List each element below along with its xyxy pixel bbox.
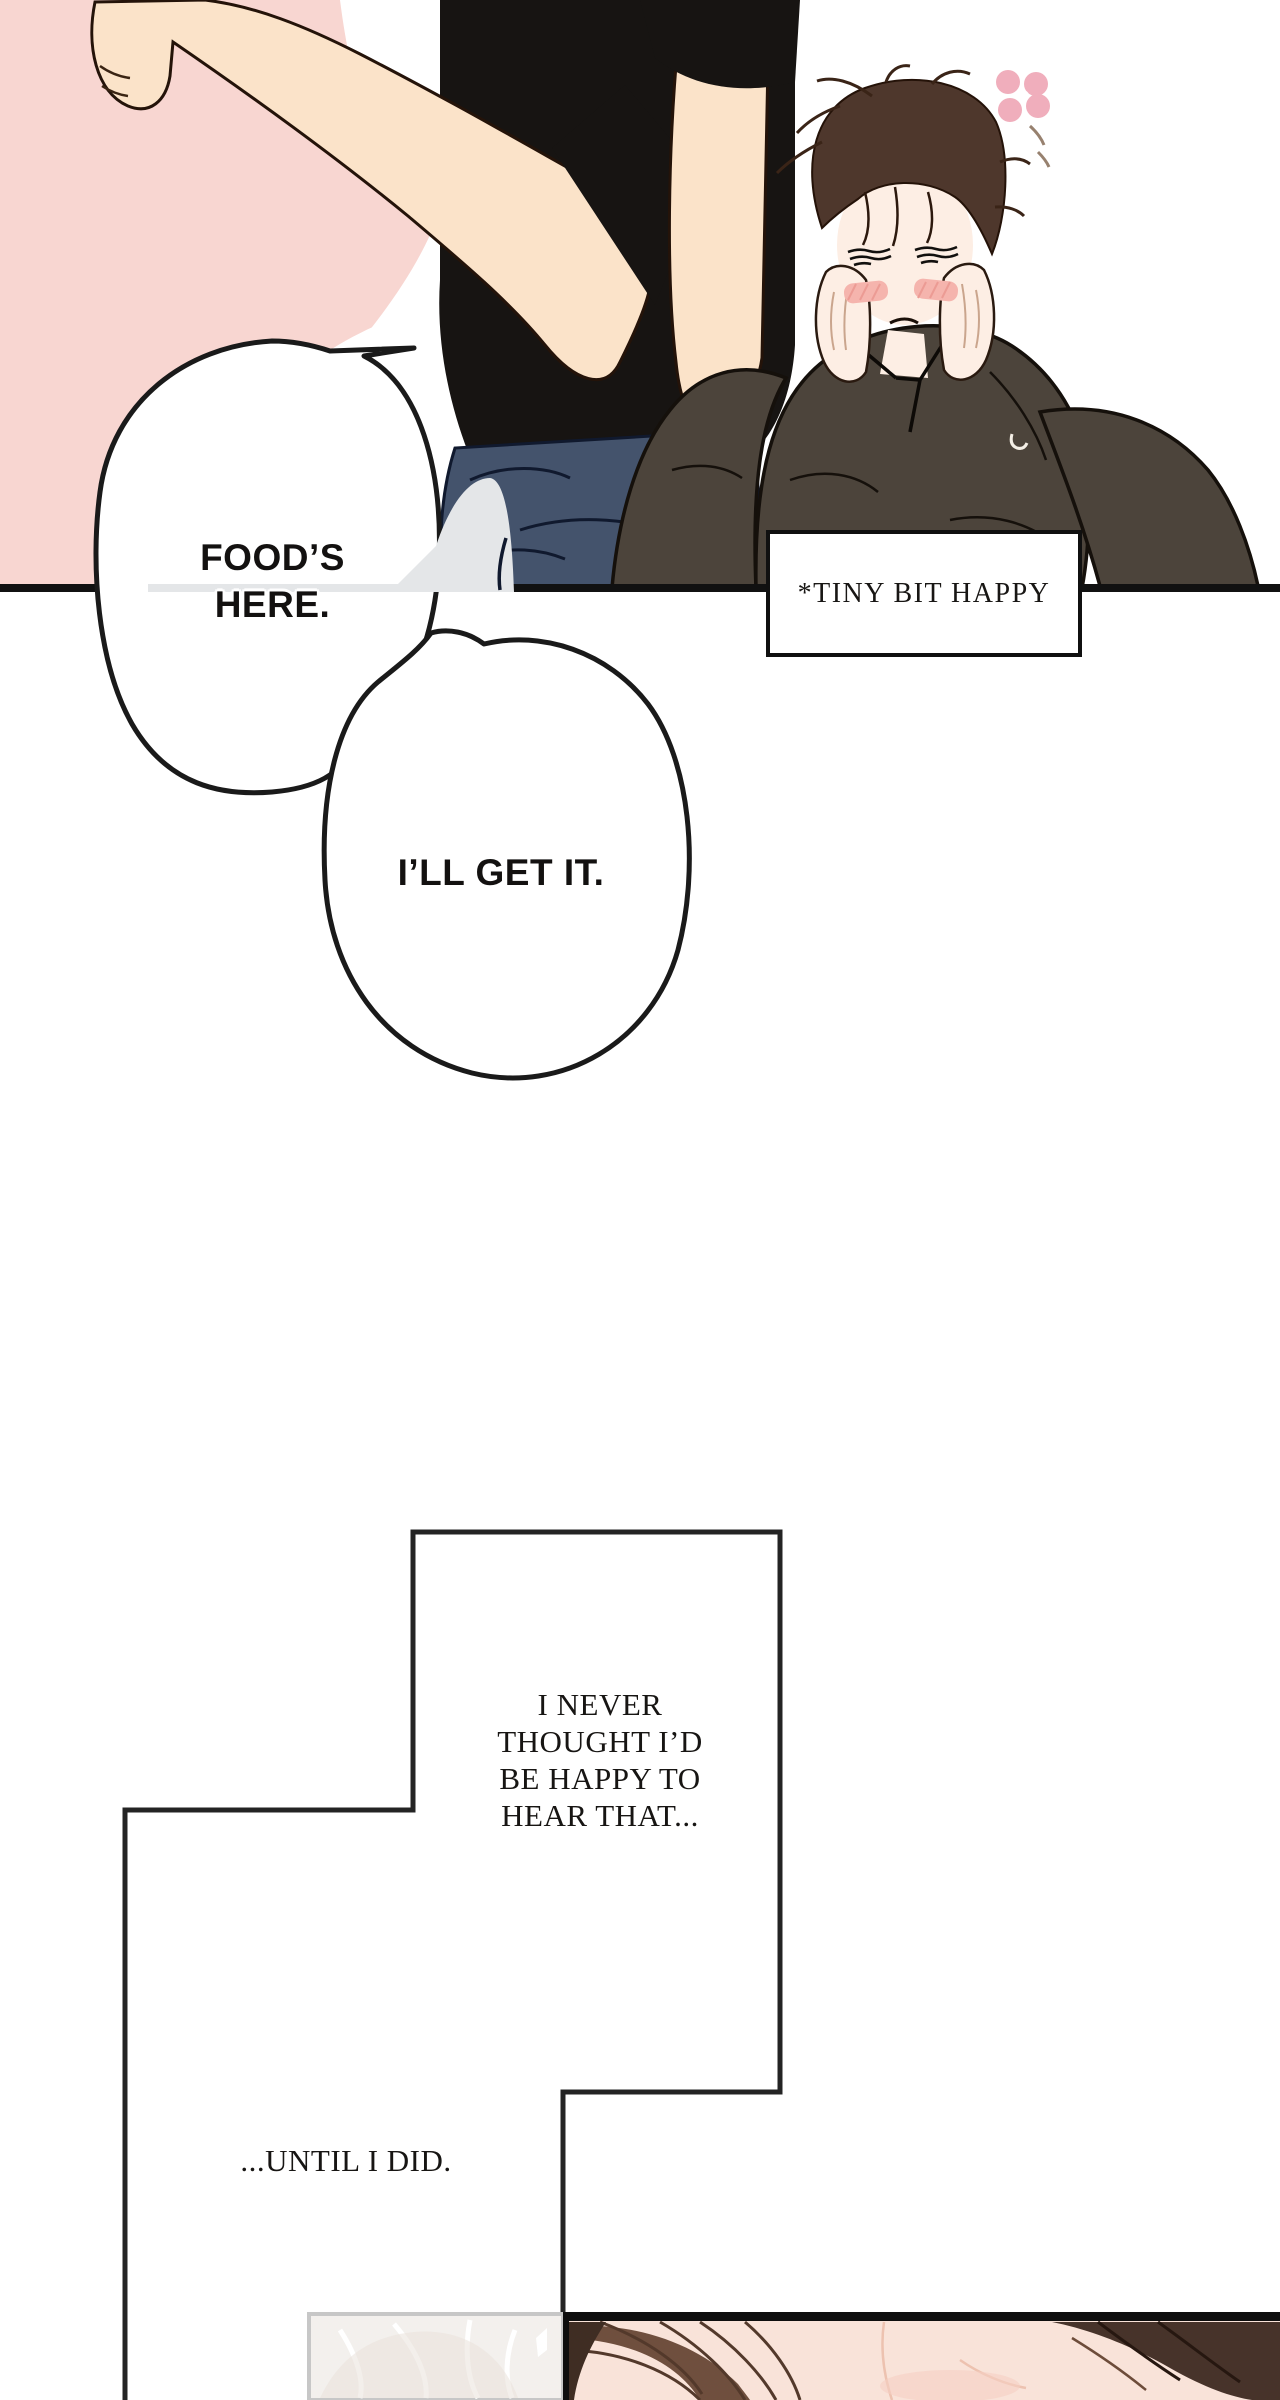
bottom-panel — [309, 2312, 1280, 2400]
narration-thought-text: I NEVER THOUGHT I’D BE HAPPY TO HEAR THA… — [440, 1686, 760, 1834]
comic-page: FOOD’S HERE. I’LL GET IT. *TINY BIT HAPP… — [0, 0, 1280, 2400]
kiss-panel — [563, 2312, 1280, 2400]
caption-box: *TINY BIT HAPPY — [766, 530, 1082, 657]
kiss-panel-top-border — [563, 2312, 1280, 2321]
bottom-section-art — [0, 1500, 1280, 2400]
hanging-arm — [669, 37, 768, 420]
kiss-panel-left-border — [563, 2312, 569, 2400]
memory-box — [309, 2314, 563, 2400]
speech-bubble-text-foods-here: FOOD’S HERE. — [150, 534, 395, 628]
speech-bubble-text-ill-get-it: I’LL GET IT. — [366, 849, 636, 896]
flower-center — [1017, 90, 1029, 102]
caption-text: *TINY BIT HAPPY — [798, 578, 1051, 610]
stepped-panel-outline — [125, 1532, 780, 2400]
narration-tail-text: ...UNTIL I DID. — [166, 2142, 526, 2179]
